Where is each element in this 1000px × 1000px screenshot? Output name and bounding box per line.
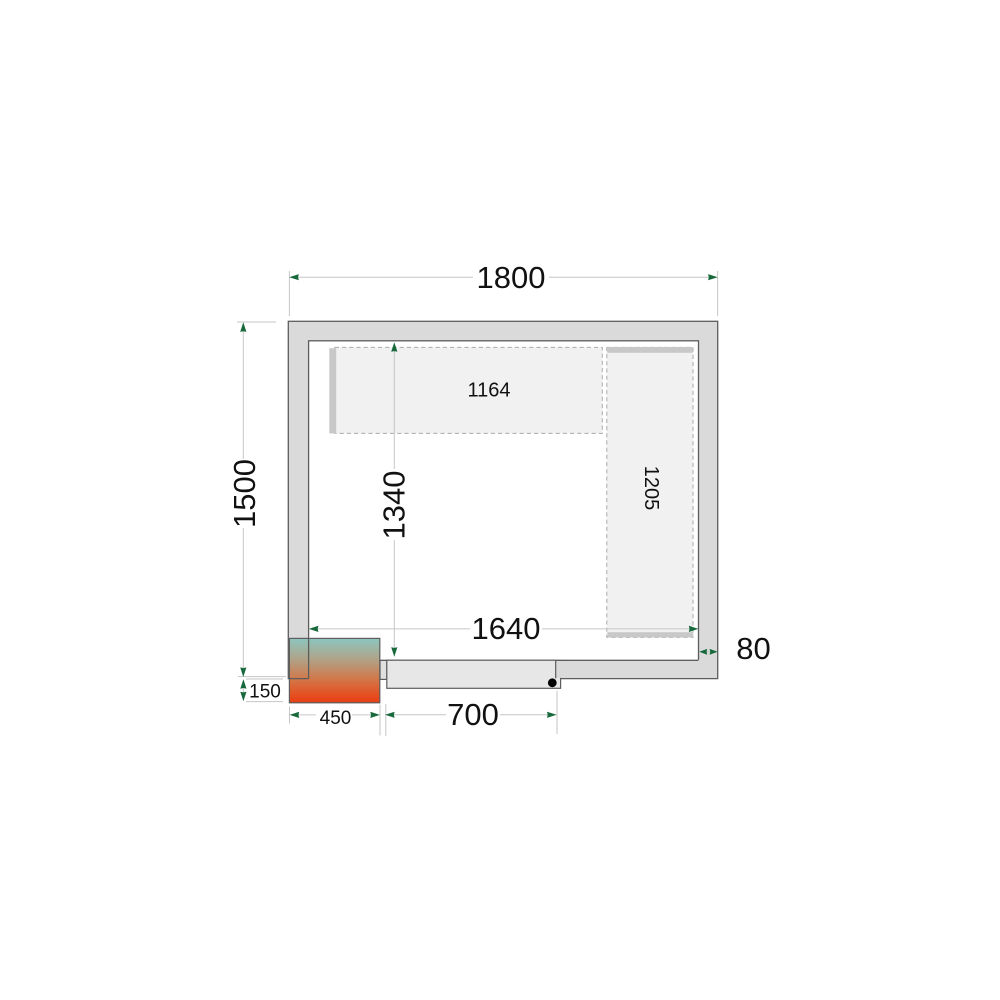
svg-text:700: 700 [447,697,499,732]
svg-text:1640: 1640 [472,611,541,646]
svg-text:150: 150 [249,682,281,703]
svg-text:450: 450 [320,708,352,729]
svg-text:80: 80 [736,631,770,666]
svg-text:1205: 1205 [640,466,662,511]
svg-text:1500: 1500 [227,459,262,528]
svg-text:1164: 1164 [467,380,510,402]
svg-text:1800: 1800 [477,260,546,295]
svg-text:1340: 1340 [377,471,412,540]
